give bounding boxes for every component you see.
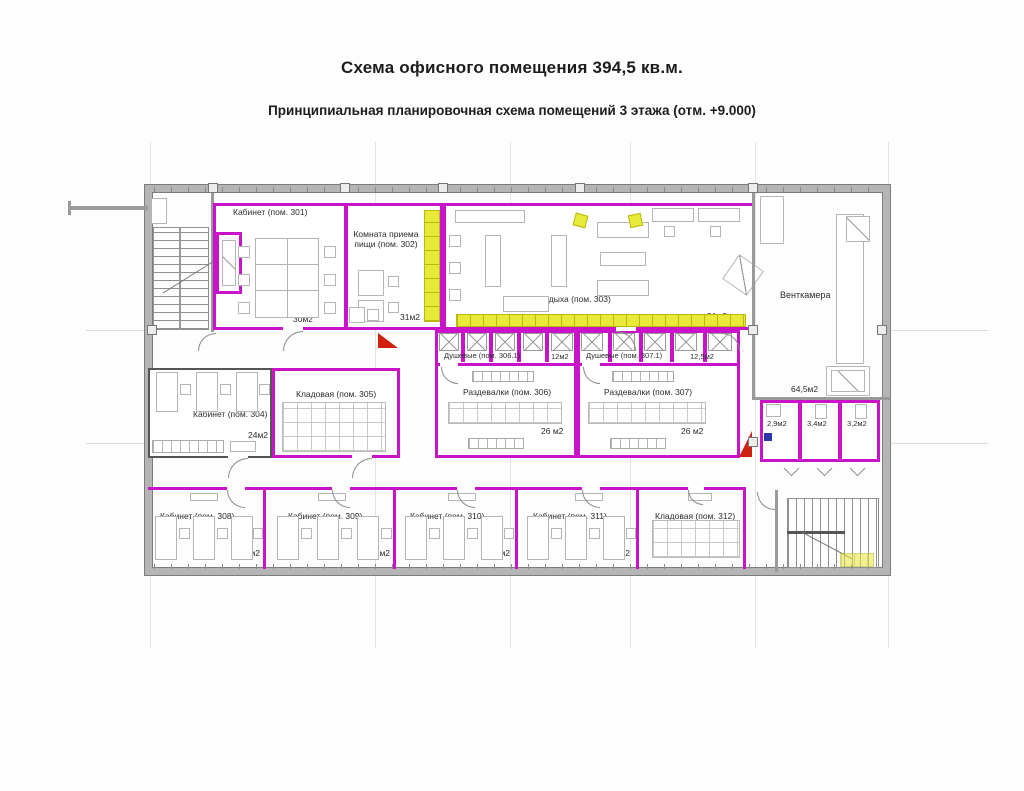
chair (238, 274, 250, 286)
shower-stall (467, 333, 487, 351)
desk (443, 516, 465, 560)
desk (196, 372, 218, 412)
chair (179, 528, 190, 539)
chair (220, 384, 231, 395)
wc-fixture (766, 404, 781, 417)
sofa (551, 235, 567, 287)
room-306-area: 26 м2 (541, 426, 563, 436)
chair (551, 528, 562, 539)
shelving (652, 520, 740, 558)
stair-divider (179, 227, 181, 330)
desk (236, 372, 258, 412)
locker-grid (448, 402, 562, 424)
shower-stall (439, 333, 459, 351)
screen-panel (222, 240, 236, 286)
wc-fixture (815, 404, 827, 419)
bench (468, 438, 524, 449)
wc1-area: 2,9м2 (767, 419, 787, 428)
desk (317, 516, 339, 560)
room-301-label: Кабинет (пом. 301) (233, 207, 307, 217)
locker-strip (456, 314, 746, 327)
wc-fixture (855, 404, 867, 419)
dining-table (358, 270, 384, 296)
desk (698, 208, 740, 222)
chair (217, 528, 228, 539)
chair (449, 289, 461, 301)
stair-landing-bar (787, 531, 845, 534)
chair (429, 528, 440, 539)
floor-plan-page: Схема офисного помещения 394,5 кв.м. При… (0, 0, 1024, 791)
chair (388, 302, 399, 313)
desk (405, 516, 427, 560)
locker-column (424, 210, 440, 322)
coffee-table (600, 252, 646, 266)
page-title: Схема офисного помещения 394,5 кв.м. (0, 58, 1024, 78)
fire-marker-icon (378, 333, 398, 348)
wc-divider (798, 402, 802, 460)
column-marker (575, 183, 585, 193)
chair (449, 235, 461, 247)
chair (504, 528, 514, 539)
stair-landing-closet (151, 198, 167, 224)
shower-stall (581, 333, 603, 351)
column-marker (438, 183, 448, 193)
cabinet-row (152, 440, 224, 453)
stair-wall (775, 490, 778, 572)
room-307-1-label: Душевые (пом. 307.1) (586, 351, 662, 360)
vent-equipment (760, 196, 784, 244)
chair (388, 276, 399, 287)
desk (565, 516, 587, 560)
yellow-chair (628, 213, 643, 228)
chair (301, 528, 312, 539)
desk (231, 516, 253, 560)
chair (253, 528, 263, 539)
desk (357, 516, 379, 560)
chair (467, 528, 478, 539)
locker-grid (588, 402, 706, 424)
chair (238, 302, 250, 314)
chair (238, 246, 250, 258)
conference-table (255, 238, 319, 318)
desk (156, 372, 178, 412)
wc3-area: 3,2м2 (847, 419, 867, 428)
shower-divider (670, 332, 674, 362)
column-marker (748, 183, 758, 193)
room-302-area: 31м2 (400, 312, 420, 322)
column-marker (147, 325, 157, 335)
desk (481, 516, 503, 560)
vent-label: Венткамера (780, 290, 830, 301)
chair (324, 274, 336, 286)
chair (664, 226, 675, 237)
room-306-label: Раздевалки (пом. 306) (463, 387, 551, 397)
grid-line (888, 330, 988, 331)
chair (710, 226, 721, 237)
grid-line (888, 443, 988, 444)
window-wall-top (154, 187, 882, 192)
room-302-label: Комната приема пищи (пом. 302) (350, 229, 422, 249)
bench (612, 371, 674, 382)
column-marker (748, 437, 758, 447)
vent-unit-inner (831, 370, 865, 392)
room-divider (393, 487, 396, 569)
wall-divider (577, 363, 740, 366)
staircase-left (153, 227, 209, 330)
room-307-area: 26 м2 (681, 426, 703, 436)
desk (193, 516, 215, 560)
wc-divider (838, 402, 842, 460)
sideboard (455, 210, 525, 223)
room-divider (636, 487, 639, 569)
drain-marker (764, 433, 772, 441)
chair (589, 528, 600, 539)
grid-line (86, 330, 148, 331)
chair (324, 302, 336, 314)
room-divider (263, 487, 266, 569)
shower-stall (495, 333, 515, 351)
vent-hatch (846, 216, 870, 242)
sofa (485, 235, 501, 287)
radiator (190, 493, 218, 501)
chair (449, 262, 461, 274)
sofa (597, 280, 649, 296)
chair (381, 528, 392, 539)
shower-stall (523, 333, 543, 351)
column-marker (877, 325, 887, 335)
room-divider (743, 487, 746, 569)
room-307-1-area: 12,5м2 (690, 352, 714, 361)
page-subtitle: Принципиальная планировочная схема помещ… (0, 103, 1024, 118)
chair (259, 384, 270, 395)
exterior-ledge (70, 206, 148, 210)
column-marker (748, 325, 758, 335)
room-307-label: Раздевалки (пом. 307) (604, 387, 692, 397)
hatch-mark (840, 553, 874, 567)
grid-line (86, 443, 148, 444)
bench (610, 438, 666, 449)
wc2-area: 3,4м2 (807, 419, 827, 428)
cabinet (230, 441, 256, 452)
column-marker (340, 183, 350, 193)
shower-stall (675, 333, 697, 351)
column-marker (208, 183, 218, 193)
room-divider (515, 487, 518, 569)
chair (626, 528, 636, 539)
chair (180, 384, 191, 395)
chair (324, 246, 336, 258)
vent-area: 64,5м2 (791, 384, 818, 394)
exterior-ledge-cap (68, 201, 71, 215)
desk (652, 208, 694, 222)
room-306-1-label: Душевые (пом. 306.1) (444, 351, 520, 360)
shower-stall (644, 333, 666, 351)
shower-divider (545, 332, 549, 362)
room-306-1-area: 12м2 (551, 352, 569, 361)
chair (341, 528, 352, 539)
desk (603, 516, 625, 560)
desk (277, 516, 299, 560)
room-305-label: Кладовая (пом. 305) (296, 389, 376, 399)
bench (472, 371, 534, 382)
shelving (282, 402, 386, 452)
room-304-area: 24м2 (248, 430, 268, 440)
coffee-table (503, 296, 549, 312)
shower-stall (551, 333, 573, 351)
kitchen-unit (367, 309, 379, 321)
desk (527, 516, 549, 560)
desk (155, 516, 177, 560)
vent-wall (752, 190, 755, 400)
kitchen-unit (349, 307, 365, 323)
